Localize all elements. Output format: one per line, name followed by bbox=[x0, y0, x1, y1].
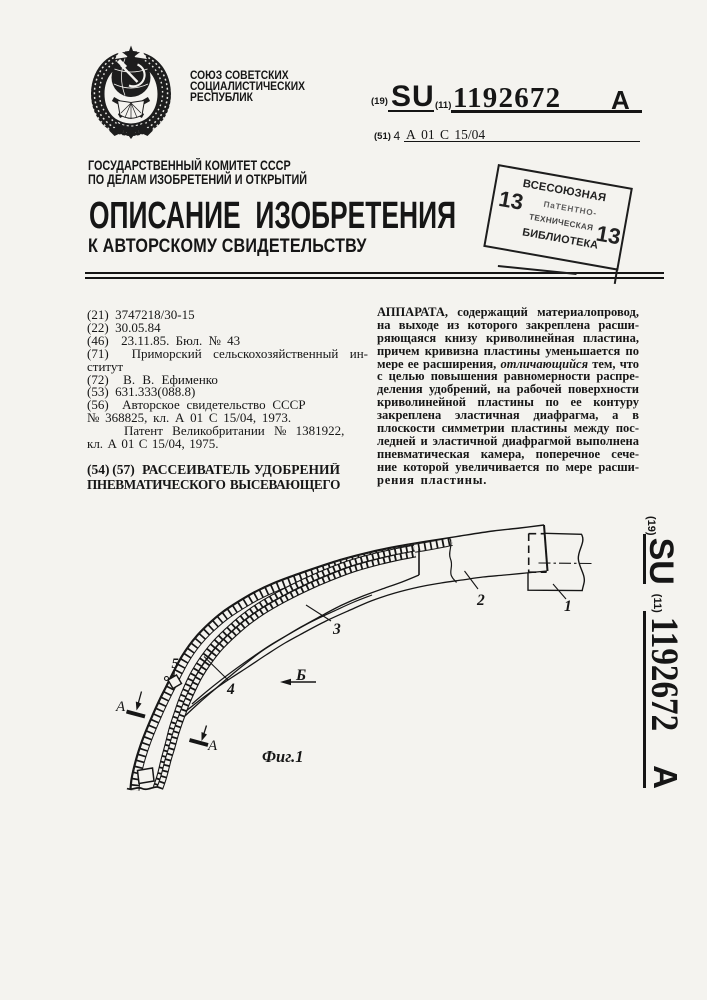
svg-text:Б: Б bbox=[295, 667, 306, 684]
svg-text:А: А bbox=[115, 699, 126, 715]
svg-text:А: А bbox=[207, 738, 218, 754]
svg-text:3: 3 bbox=[332, 621, 341, 638]
svg-text:1: 1 bbox=[564, 598, 572, 615]
svg-text:2: 2 bbox=[476, 592, 485, 609]
svg-text:4: 4 bbox=[226, 681, 235, 698]
svg-text:Фиг.1: Фиг.1 bbox=[262, 747, 303, 766]
svg-text:5: 5 bbox=[172, 656, 179, 672]
